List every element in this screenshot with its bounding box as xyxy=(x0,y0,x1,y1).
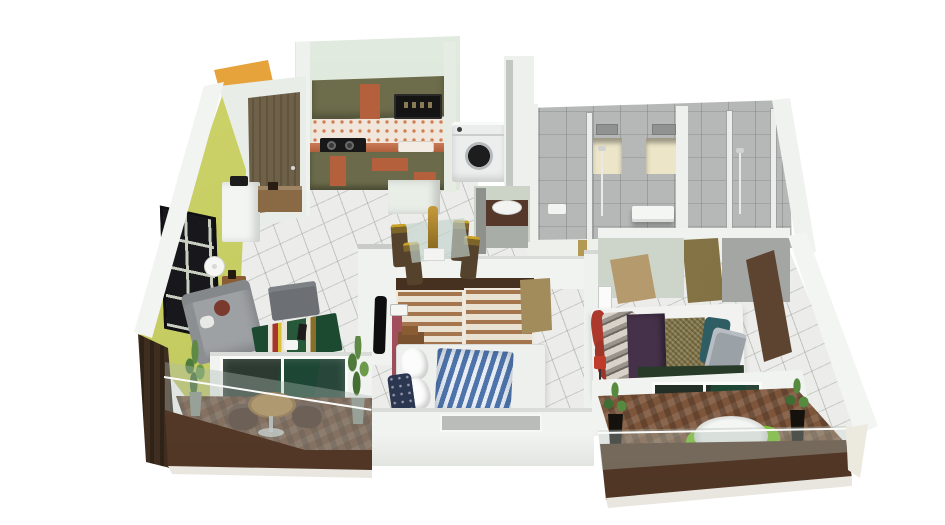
lower-orange-panel-b xyxy=(372,158,408,171)
balcony-chair-right xyxy=(291,401,324,430)
bed2-base xyxy=(396,344,546,430)
kitchen-left-column xyxy=(296,42,310,216)
duvet-blue-striped xyxy=(434,348,513,418)
sofa-cushion-maroon xyxy=(214,300,230,316)
dining-chair-4 xyxy=(460,235,480,279)
console-decor xyxy=(230,176,248,186)
wardrobe-right-panel xyxy=(464,288,534,350)
bath-mirror-right xyxy=(652,124,676,135)
washing-machine xyxy=(452,122,506,182)
sofa-cushion-white xyxy=(199,314,215,329)
balcony-chair-left xyxy=(227,403,260,432)
lower-orange-panel-a xyxy=(330,156,346,186)
master-switch-panel xyxy=(598,286,612,314)
living-door-mullion xyxy=(281,356,284,404)
master-north-top-strip xyxy=(598,228,790,238)
kitchen-lower-cabinets xyxy=(310,152,446,190)
bed2-pillow-white-2 xyxy=(400,375,434,413)
bedroom2-window-slot xyxy=(440,414,542,432)
red-lamp-pole xyxy=(599,369,601,385)
rug-tray xyxy=(284,340,298,350)
dining-chair-2 xyxy=(403,241,423,285)
microwave-display xyxy=(404,102,432,108)
kitchen-upper-cabinets xyxy=(312,76,444,120)
cabinet-orange-panel xyxy=(360,84,380,120)
bedroom-divider-wall xyxy=(584,250,598,436)
green-chair-left xyxy=(684,428,717,462)
bed2-pillow-white-1 xyxy=(399,346,431,383)
white-table-base xyxy=(716,470,744,480)
balcony-planter-left xyxy=(188,392,203,416)
shower-glass-1 xyxy=(586,112,593,250)
vanity-basin xyxy=(492,200,522,215)
bed2-pillow-navy xyxy=(387,373,417,422)
white-table-pedestal xyxy=(728,452,732,474)
master-door-mullion xyxy=(703,382,706,432)
pillow-red-2 xyxy=(593,339,617,381)
bed2-footboard xyxy=(436,408,544,430)
bath-center-partition xyxy=(676,106,688,252)
kitchen-backsplash xyxy=(312,119,444,146)
shower-set-left xyxy=(601,148,603,216)
pillow-red-1 xyxy=(589,309,612,355)
dining-half-wall xyxy=(388,180,440,214)
bath-niche-right xyxy=(646,138,684,174)
burner-right xyxy=(345,141,354,150)
washer-door xyxy=(465,142,493,170)
side-table-decor xyxy=(228,270,236,279)
nook-gray-pillar xyxy=(476,188,486,254)
blanket-olive xyxy=(665,317,707,390)
rug-decor-figure xyxy=(297,324,307,341)
balcony-left-toprail xyxy=(164,376,372,411)
doorframe-gold-strip xyxy=(578,240,587,262)
balcony-planter-right xyxy=(350,398,366,424)
entry-sideboard xyxy=(258,186,302,212)
striped-rug xyxy=(251,313,342,365)
bed2-side-table xyxy=(402,326,418,335)
nook-wall xyxy=(474,186,530,242)
kitchen-sink xyxy=(398,141,434,153)
pillow-gray xyxy=(703,327,748,382)
bedroom2-north-wall xyxy=(372,256,592,289)
kitchen-counter xyxy=(310,143,446,152)
green-chair-right xyxy=(750,424,783,458)
burner-left xyxy=(327,141,336,150)
washer-knob xyxy=(457,127,462,132)
window-frame-grid xyxy=(160,206,220,341)
master-sliding-door xyxy=(652,382,762,438)
shower-head-right xyxy=(736,148,744,153)
shower-head-left xyxy=(598,146,606,151)
statue-pedestal xyxy=(423,248,445,261)
wall-lamp xyxy=(390,304,408,316)
washer-panel-line xyxy=(452,134,506,136)
pillow-teal xyxy=(699,316,731,365)
bath-mirror-left xyxy=(596,124,618,135)
side-table xyxy=(222,276,246,292)
balcony-right-plant-right xyxy=(782,378,812,418)
dining-chair-1 xyxy=(391,223,410,267)
entry-console xyxy=(222,182,260,242)
kitchen-right-column xyxy=(444,42,456,192)
bath-shelf xyxy=(548,204,566,214)
statue-centerpiece xyxy=(428,206,438,250)
white-table-top xyxy=(694,416,768,456)
vanity-base xyxy=(486,226,528,248)
lower-orange-panel-c xyxy=(414,172,436,184)
red-floor-lamp xyxy=(594,356,606,369)
ottoman xyxy=(268,281,320,321)
basin-counter xyxy=(632,206,674,222)
vanity-cabinet xyxy=(486,200,528,226)
door-knob xyxy=(291,166,295,170)
balcony-right-planter-left xyxy=(607,414,624,447)
master-north-wall-left xyxy=(598,236,684,298)
floor-lamp xyxy=(204,256,225,277)
utility-wall xyxy=(504,56,534,196)
wardrobe-left-panel xyxy=(396,290,464,350)
dining-chair-3 xyxy=(451,219,470,261)
balcony-plant-right xyxy=(344,336,372,402)
wardrobe-beam xyxy=(394,278,534,290)
floorplan-render xyxy=(0,0,945,525)
balcony-plant-left xyxy=(182,340,208,398)
base-wall-bottom xyxy=(372,432,594,466)
shower-glass-3 xyxy=(770,108,777,252)
microwave xyxy=(394,94,442,119)
shower-glass-2 xyxy=(726,110,733,252)
foot-bench-green xyxy=(638,365,744,387)
gas-cooktop xyxy=(320,138,366,153)
wooden-table-top xyxy=(248,392,296,418)
bedroom2-maroon-edge xyxy=(392,314,402,422)
sideboard-decor xyxy=(268,182,278,190)
pillows-gray-tan xyxy=(602,311,641,383)
tv-screen xyxy=(373,296,387,354)
shower-set-right xyxy=(739,150,741,214)
living-south-wall xyxy=(210,352,372,412)
master-north-wall-right xyxy=(722,238,790,302)
wooden-table-pedestal xyxy=(269,416,273,432)
bed2-headboard xyxy=(398,332,424,350)
runner-purple xyxy=(627,313,668,390)
utility-wall-accent xyxy=(506,60,513,192)
balcony-right-planter-right xyxy=(789,410,806,443)
wooden-table-base xyxy=(258,428,284,437)
bath-niche-left xyxy=(592,138,622,174)
sofa xyxy=(180,279,265,366)
balcony-right-toprail xyxy=(598,428,848,434)
bath-left-column xyxy=(526,104,538,254)
living-sliding-door xyxy=(220,356,348,410)
balcony-right-plant-left xyxy=(600,382,630,422)
tv-partition-wall xyxy=(358,244,396,365)
master-bed-base xyxy=(591,303,746,396)
